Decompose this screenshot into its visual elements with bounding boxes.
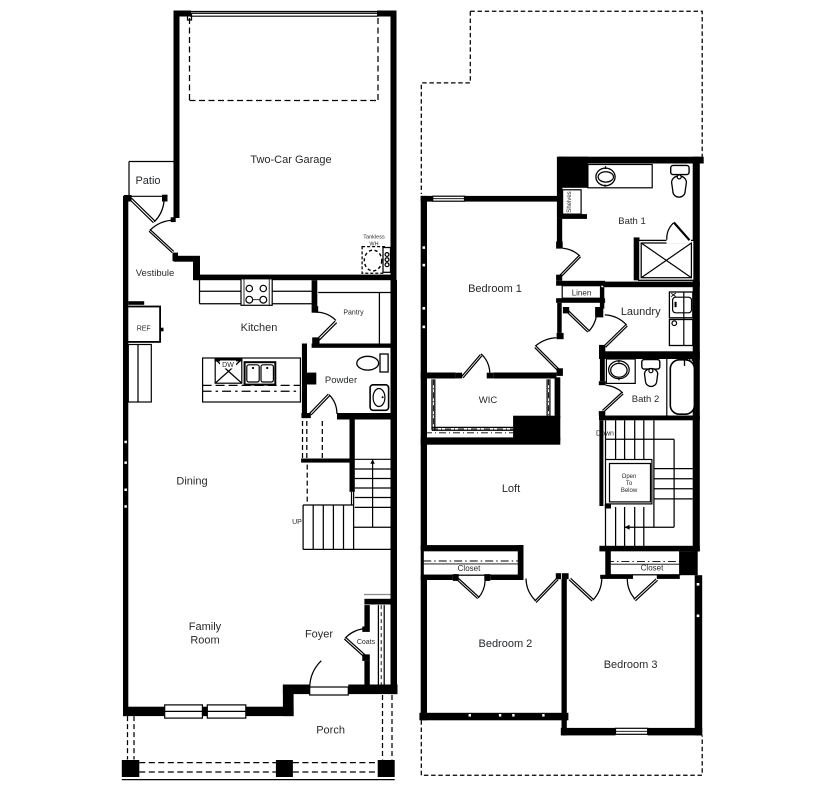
svg-text:Kitchen: Kitchen [241, 322, 278, 334]
svg-text:REF: REF [137, 326, 151, 333]
svg-text:Vestibule: Vestibule [136, 268, 175, 279]
svg-text:UP: UP [292, 519, 302, 526]
svg-text:Bedroom 1: Bedroom 1 [468, 283, 522, 295]
svg-text:Foyer: Foyer [305, 629, 333, 641]
svg-text:Bath 2: Bath 2 [632, 394, 659, 405]
svg-text:Patio: Patio [135, 175, 160, 187]
svg-text:Bath 1: Bath 1 [618, 216, 645, 227]
svg-text:Laundry: Laundry [621, 306, 661, 318]
svg-text:Linen: Linen [572, 288, 592, 297]
svg-text:DW: DW [222, 362, 234, 369]
svg-text:Below: Below [621, 488, 638, 494]
svg-text:Porch: Porch [316, 725, 345, 737]
svg-text:Dining: Dining [176, 476, 207, 488]
svg-text:Tankless: Tankless [363, 235, 385, 241]
svg-text:Bedroom 2: Bedroom 2 [478, 638, 532, 650]
svg-text:Family: Family [189, 621, 222, 633]
svg-text:Closet: Closet [458, 564, 481, 573]
svg-text:Powder: Powder [325, 375, 357, 386]
svg-text:WIC: WIC [479, 395, 498, 406]
svg-text:Pantry: Pantry [343, 310, 364, 317]
svg-text:Closet: Closet [641, 564, 664, 573]
svg-text:Two-Car Garage: Two-Car Garage [250, 154, 331, 166]
svg-text:Bedroom 3: Bedroom 3 [604, 659, 658, 671]
svg-text:To: To [626, 481, 633, 487]
svg-text:Coats: Coats [357, 639, 376, 646]
svg-text:Shelves: Shelves [567, 191, 573, 212]
svg-text:Loft: Loft [502, 483, 520, 495]
svg-text:Room: Room [190, 635, 219, 647]
svg-text:Open: Open [622, 474, 637, 480]
